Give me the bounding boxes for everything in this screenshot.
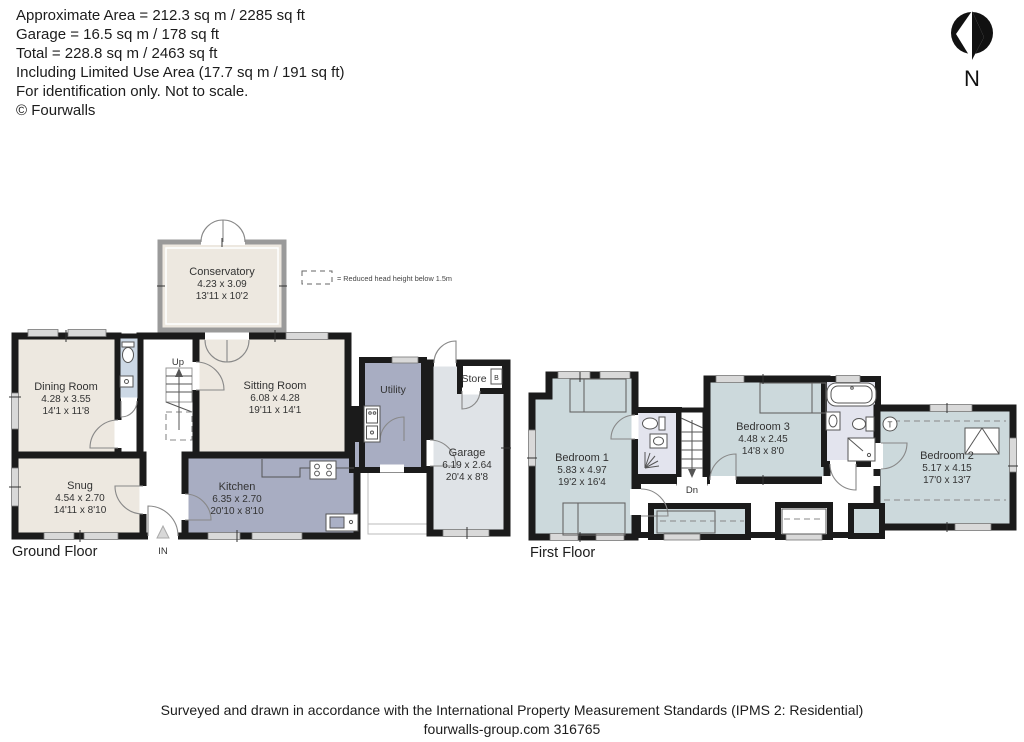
toilet-cistern-icon	[122, 342, 134, 347]
room-label: Conservatory	[189, 266, 255, 278]
room-dim-metric: 6.08 x 4.28	[250, 393, 300, 404]
window	[716, 376, 744, 383]
north-label: N	[964, 66, 980, 91]
toilet-cistern-icon	[866, 417, 874, 431]
door-gap	[427, 440, 434, 466]
door-gap	[121, 398, 137, 405]
door-arc	[223, 220, 245, 242]
door-gap	[182, 494, 189, 520]
window	[664, 534, 700, 540]
room-dim-metric: 6.19 x 2.64	[442, 460, 492, 471]
tank-label: T	[888, 421, 893, 430]
window	[836, 376, 860, 383]
toilet-icon	[853, 419, 866, 430]
window	[286, 333, 328, 340]
boiler-icon: B	[491, 369, 502, 384]
kitchen-sink-icon	[330, 517, 344, 528]
room-dim-imperial: 14'1 x 11'8	[42, 406, 89, 417]
room-label: Kitchen	[219, 481, 256, 493]
room-dim-imperial: 19'2 x 16'4	[558, 477, 606, 488]
window	[443, 530, 489, 537]
window	[12, 393, 19, 429]
north-arrow-icon: N	[951, 11, 993, 91]
room-label: Garage	[449, 447, 486, 459]
up-label: Up	[172, 357, 184, 368]
window	[44, 533, 74, 540]
toilet-icon	[643, 418, 658, 429]
ground-floor-plan: B Conservatory 4.23 x 3.09 13'11 x 10'2 …	[9, 220, 511, 560]
room-label: Bedroom 2	[920, 450, 974, 462]
room-dim-metric: 5.17 x 4.15	[922, 463, 972, 474]
window	[84, 533, 118, 540]
door-gap	[462, 388, 480, 395]
door-gap	[434, 360, 456, 367]
room-dim-metric: 4.23 x 3.09	[197, 279, 247, 290]
toilet-cistern-icon	[659, 417, 665, 430]
window	[600, 372, 630, 379]
window	[392, 357, 418, 363]
sink-icon	[650, 434, 667, 448]
room-label: Bedroom 3	[736, 421, 790, 433]
room-dim-imperial: 17'0 x 13'7	[923, 475, 971, 486]
legend-swatch	[302, 271, 332, 284]
first-floor-plan: T Bedroom 1 5.83 x 4.97 19'2 x 16'4 Bedr…	[527, 372, 1018, 562]
room-dim-imperial: 14'11 x 8'10	[54, 505, 107, 516]
room-dim-imperial: 20'4 x 8'8	[446, 472, 489, 483]
room-dim-metric: 4.48 x 2.45	[738, 434, 788, 445]
door-gap	[630, 489, 642, 515]
door-gap	[193, 362, 200, 390]
window	[786, 534, 822, 540]
window	[208, 533, 240, 540]
legend-label: = Reduced head height below 1.5m	[337, 274, 452, 283]
down-label: Dn	[686, 485, 698, 496]
sink-icon	[120, 376, 133, 387]
entrance-label: IN	[158, 546, 168, 557]
room-dim-metric: 4.28 x 3.55	[41, 394, 91, 405]
window	[529, 430, 536, 466]
window	[558, 372, 590, 379]
door-gap	[140, 486, 147, 514]
room-label: Snug	[67, 480, 93, 492]
window	[68, 330, 106, 337]
opening	[822, 476, 880, 486]
room-dim-imperial: 20'10 x 8'10	[210, 506, 264, 517]
room-dim-metric: 4.54 x 2.70	[55, 493, 105, 504]
footer: Surveyed and drawn in accordance with th…	[0, 701, 1024, 739]
room-dim-metric: 5.83 x 4.97	[557, 465, 607, 476]
footer-standards-line: Surveyed and drawn in accordance with th…	[0, 701, 1024, 720]
room-dim-imperial: 14'8 x 8'0	[742, 446, 785, 457]
toilet-icon	[123, 348, 134, 363]
door-gap	[115, 420, 122, 448]
room-label: Utility	[380, 384, 406, 396]
floorplan-page: Approximate Area = 212.3 sq m / 2285 sq …	[0, 0, 1024, 742]
floor-title: Ground Floor	[12, 544, 98, 560]
room-label: Sitting Room	[244, 380, 307, 392]
door-gap	[632, 415, 639, 439]
window	[28, 330, 58, 337]
door-gap	[710, 476, 736, 484]
window	[930, 405, 972, 412]
window	[252, 533, 302, 540]
window	[1010, 438, 1017, 472]
dormer-recess	[778, 505, 830, 537]
floorplan-canvas: N = Reduced head height below 1.5m	[0, 0, 1024, 742]
room-dim-imperial: 13'11 x 10'2	[196, 291, 249, 302]
room-label: Store	[461, 373, 486, 385]
dormer-recess	[851, 506, 882, 536]
legend: = Reduced head height below 1.5m	[302, 271, 452, 284]
room-dim-metric: 6.35 x 2.70	[212, 494, 262, 505]
door-arc	[201, 220, 223, 242]
window	[955, 524, 991, 531]
door-gap	[380, 465, 404, 473]
room-label: Dining Room	[34, 381, 98, 393]
boiler-label: B	[494, 375, 499, 382]
room-dim-imperial: 19'11 x 14'1	[249, 405, 302, 416]
floor-title: First Floor	[530, 545, 595, 561]
footer-website-line: fourwalls-group.com 316765	[0, 720, 1024, 739]
room-label: Bedroom 1	[555, 452, 609, 464]
hob-icon	[310, 461, 336, 479]
utility-fixtures	[364, 406, 380, 442]
door-gap	[205, 333, 249, 340]
chimney-breast	[348, 406, 362, 442]
